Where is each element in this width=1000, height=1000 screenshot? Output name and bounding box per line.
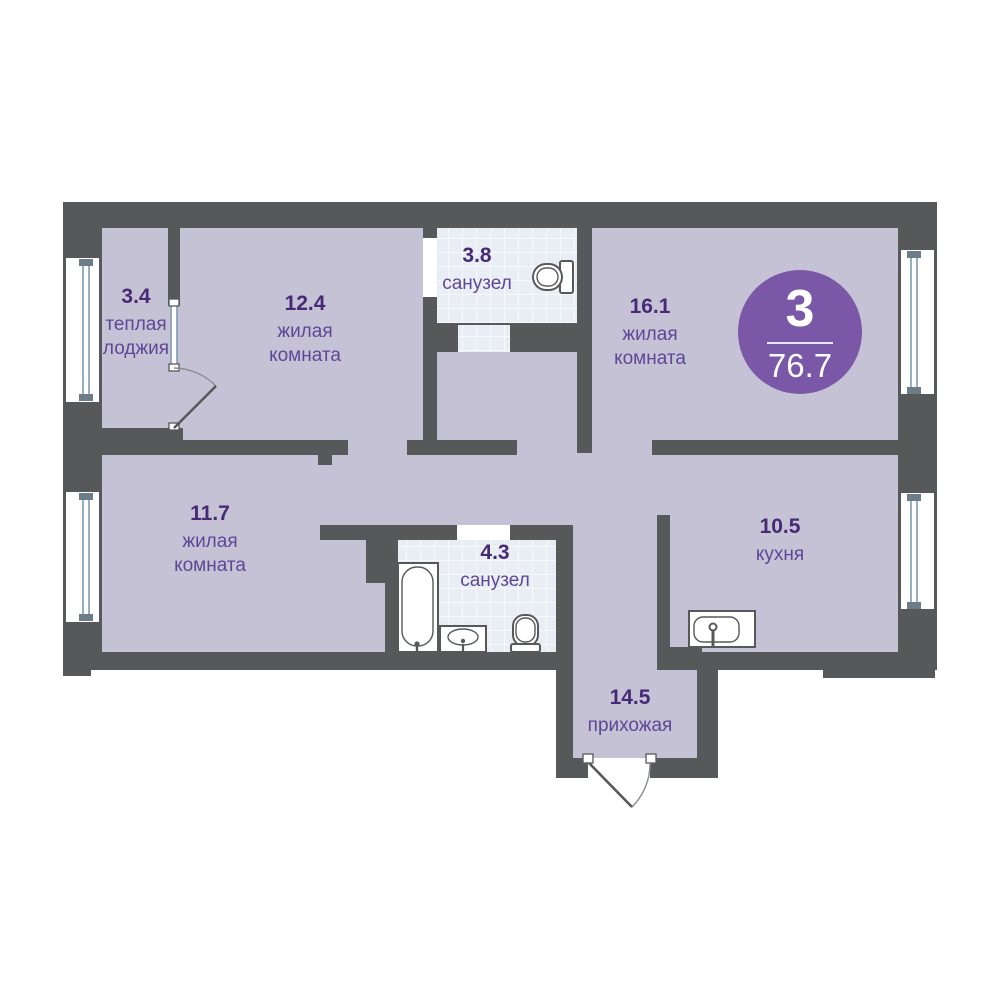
badge-divider <box>767 342 833 344</box>
bathroom-2-door-opening <box>457 525 510 540</box>
loggia-window-icon <box>66 258 99 402</box>
toilet-icon <box>533 261 573 293</box>
room-16-window-icon <box>901 250 934 394</box>
sink-icon <box>440 626 486 652</box>
rooms-count: 3 <box>786 283 815 335</box>
apartment-summary-badge: 3 76.7 <box>738 270 862 394</box>
toilet-2-icon <box>511 615 540 652</box>
kitchen-sink-icon <box>689 611 755 647</box>
bathtub-icon <box>398 563 438 654</box>
entrance-door-opening <box>588 758 650 778</box>
room-11-window-icon <box>66 492 99 622</box>
kitchen-window-icon <box>901 493 934 609</box>
total-area: 76.7 <box>768 349 832 382</box>
floor-plan-drawing <box>0 0 1000 1000</box>
bathroom-1-door-opening <box>458 325 510 352</box>
floor-plan-page: 3.4 теплая лоджия 12.4 жилая комната 3.8… <box>0 0 1000 1000</box>
